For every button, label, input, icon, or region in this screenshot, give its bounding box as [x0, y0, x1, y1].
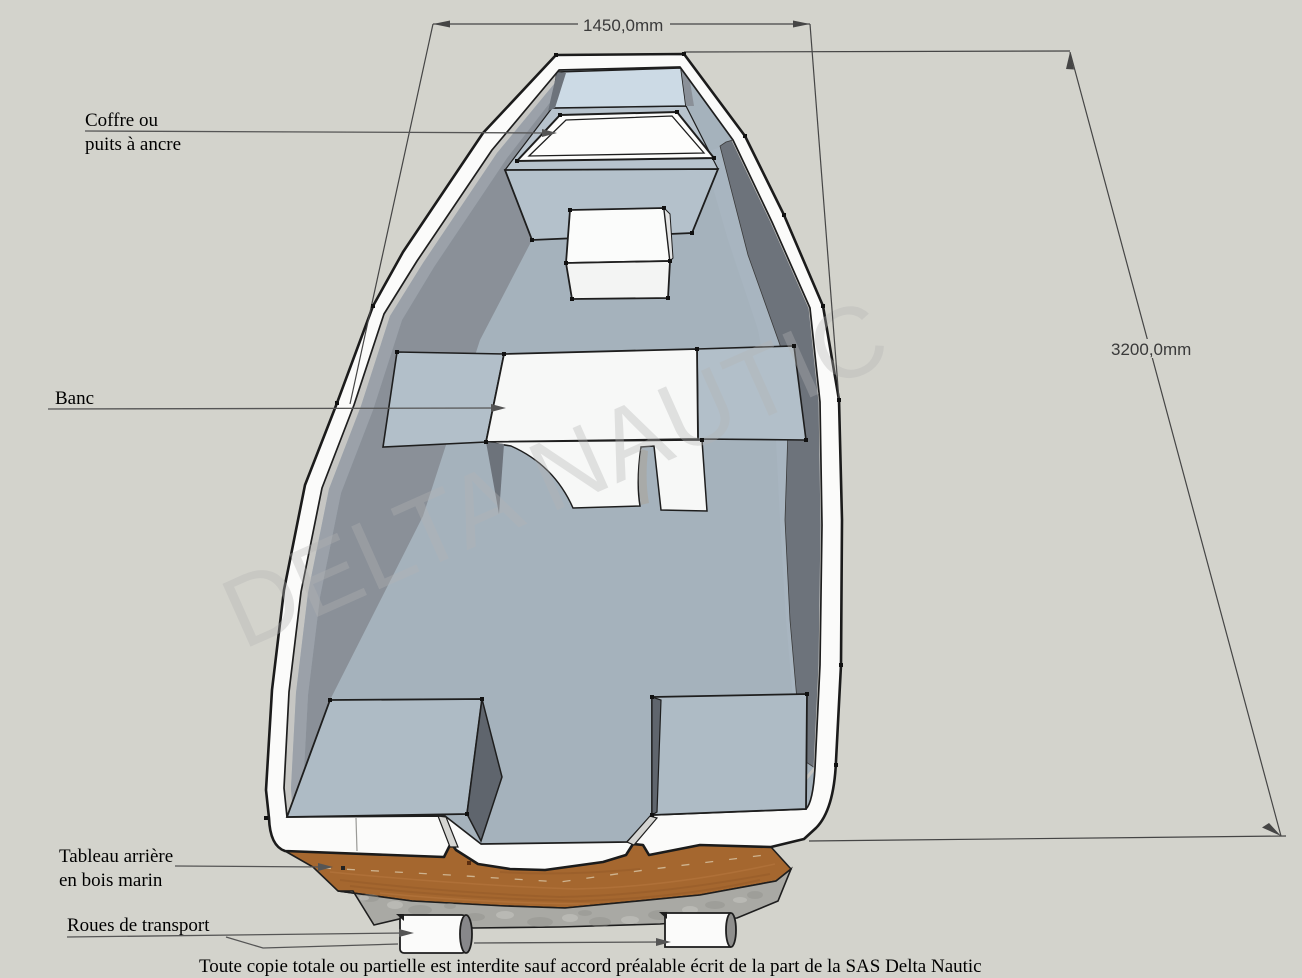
svg-text:Banc: Banc: [55, 388, 94, 409]
svg-text:Roues de transport: Roues de transport: [67, 915, 210, 936]
svg-text:Tableau arrière: Tableau arrière: [59, 846, 173, 867]
svg-text:Coffre ou: Coffre ou: [85, 110, 158, 131]
svg-text:en bois marin: en bois marin: [59, 870, 163, 891]
svg-text:1450,0mm: 1450,0mm: [583, 16, 663, 35]
svg-text:puits à ancre: puits à ancre: [85, 134, 181, 155]
svg-text:3200,0mm: 3200,0mm: [1111, 340, 1191, 359]
svg-text:Toute copie totale ou partiell: Toute copie totale ou partielle est inte…: [199, 956, 982, 977]
